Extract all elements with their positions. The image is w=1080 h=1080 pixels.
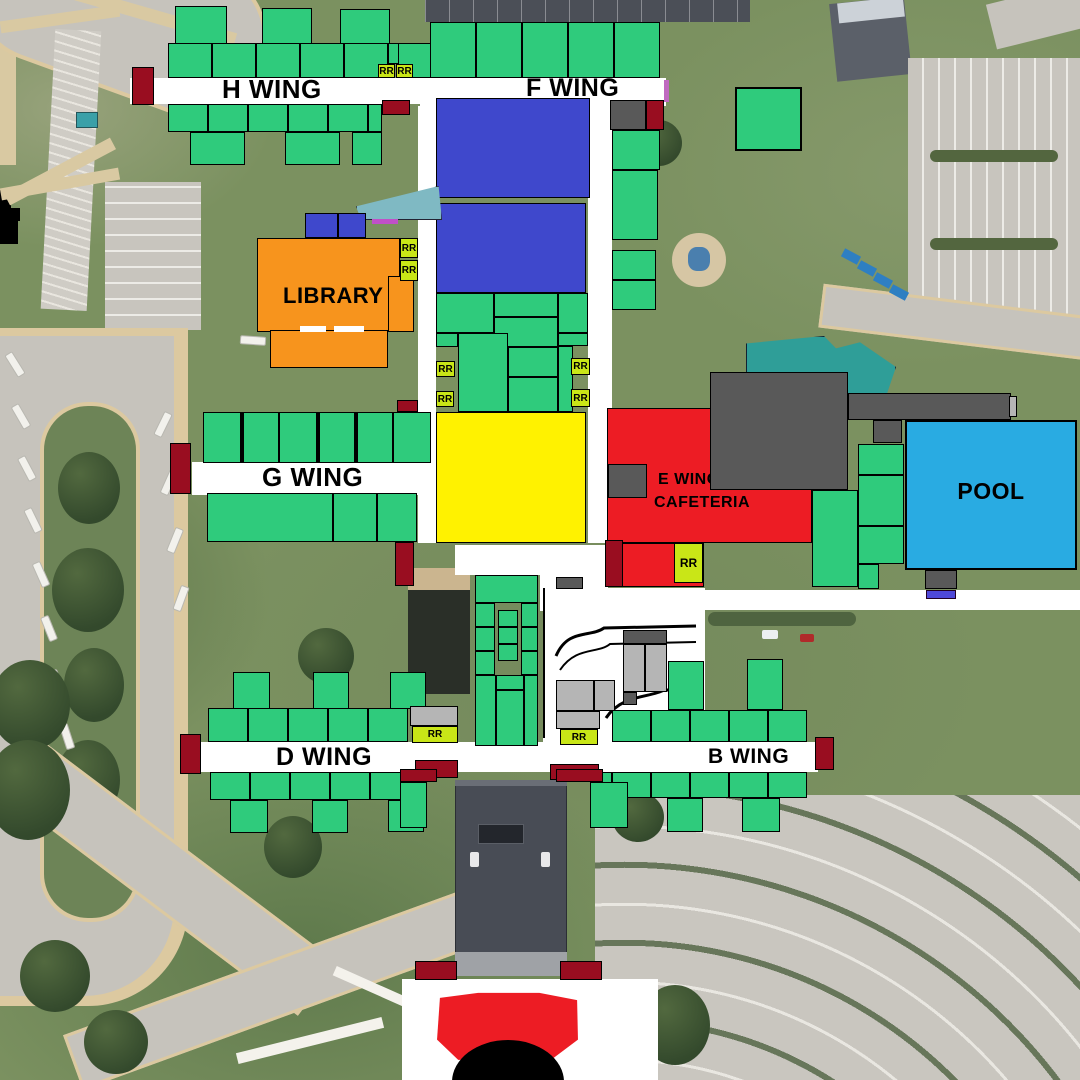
b-wing-room: [668, 661, 704, 710]
marker-blue-pool: [926, 590, 956, 599]
g-wing-room: [279, 412, 317, 463]
f-wing-room: [430, 22, 476, 78]
exit-block-g-northeast: [397, 400, 418, 412]
f-wing-room: [568, 22, 614, 78]
pe-room: [858, 475, 904, 526]
d-wing-room: [230, 800, 268, 833]
d-wing-room: [330, 772, 370, 800]
parking-ne-median-b: [930, 238, 1058, 250]
hedge-row: [708, 612, 856, 626]
library-block: [388, 276, 414, 332]
f-wing-room: [522, 22, 568, 78]
c-wing-room: [498, 644, 518, 661]
h-wing-room: [190, 132, 245, 165]
f-wing-room: [614, 22, 660, 78]
sidewalk-pool-south: [700, 590, 1080, 610]
exit-block-h-east: [382, 100, 410, 115]
b-wing-room: [690, 710, 729, 742]
core-room: [494, 293, 558, 317]
core-room: [558, 333, 588, 346]
admin-block: [623, 644, 645, 692]
parking-west-lot: [105, 182, 201, 330]
d-wing-room: [313, 672, 349, 709]
d-wing-room: [250, 772, 290, 800]
restroom-h-wing: RR: [378, 64, 395, 78]
gym-block-north: [436, 98, 590, 198]
service-block-pool: [925, 570, 957, 589]
restroom-h-wing: RR: [396, 64, 413, 78]
admin-block-dark: [623, 692, 637, 705]
c-wing-room: [496, 675, 524, 690]
service-block-cafeteria: [608, 464, 647, 498]
d-wing-room: [288, 708, 328, 742]
b-wing-room: [612, 710, 651, 742]
restroom-core: RR: [436, 361, 455, 377]
restroom-core: RR: [571, 389, 590, 407]
g-wing-room: [203, 412, 241, 463]
commons-block: [436, 412, 586, 543]
h-wing-room: [168, 43, 212, 78]
sculpture: [688, 247, 710, 271]
f-wing-room: [612, 130, 660, 170]
admin-block-dark: [623, 630, 667, 644]
g-wing-room: [241, 412, 279, 463]
library-notch: [334, 326, 364, 332]
d-wing-room: [390, 672, 426, 709]
d-wing-room: [208, 708, 248, 742]
entrance-apron: [455, 952, 567, 976]
library-notch: [300, 326, 326, 332]
service-block-d: [410, 706, 458, 726]
c-wing-room: [475, 675, 496, 746]
core-wall-tab: [0, 233, 18, 244]
b-wing-room: [651, 710, 690, 742]
b-wing-room: [768, 772, 807, 798]
entrance-room-west: [400, 782, 427, 828]
f-wing-room: [476, 22, 522, 78]
van-white: [762, 630, 778, 639]
core-room: [508, 347, 558, 377]
fieldhouse-arm: [873, 420, 902, 443]
exit-block-entrance-nw: [400, 769, 437, 782]
gym-block-south: [436, 203, 586, 293]
g-wing-room: [207, 493, 333, 542]
core-wall-tab: [0, 221, 18, 233]
h-wing-room: [300, 43, 344, 78]
g-wing-room: [333, 493, 377, 542]
d-wing-label: D WING: [276, 743, 372, 772]
h-wing-room: [328, 104, 368, 132]
b-wing-room: [729, 772, 768, 798]
restroom-core: RR: [436, 391, 454, 407]
exit-block-entrance-ne: [556, 769, 603, 782]
h-wing-room: [168, 104, 208, 132]
canoe: [857, 260, 877, 276]
h-wing-room: [212, 43, 256, 78]
pe-room: [812, 490, 858, 587]
entrance-building-ridge: [455, 780, 567, 786]
road-top-right-corner: [986, 0, 1080, 49]
c-wing-room: [498, 627, 518, 644]
fieldhouse-arm: [848, 393, 1011, 420]
tree: [64, 648, 124, 722]
b-wing-room: [690, 772, 729, 798]
core-room: [458, 333, 508, 412]
car-white: [470, 852, 479, 867]
d-wing-room: [290, 772, 330, 800]
restroom-library: RR: [400, 238, 418, 258]
g-wing-room: [377, 493, 417, 542]
tree: [52, 548, 124, 632]
entrance-room-east: [590, 782, 628, 828]
c-wing-room: [521, 603, 538, 627]
entrance-building-roof: [455, 780, 567, 960]
d-wing-room: [210, 772, 250, 800]
c-wing-room: [475, 651, 495, 675]
g-wing-label: G WING: [262, 462, 363, 493]
annex-room-northeast: [735, 87, 802, 151]
h-wing-room: [262, 8, 312, 44]
admin-block: [594, 680, 615, 711]
d-wing-room: [328, 708, 368, 742]
h-wing-room: [248, 104, 288, 132]
b-wing-room: [747, 659, 783, 710]
d-wing-room: [248, 708, 288, 742]
exit-block-cafeteria: [605, 540, 623, 587]
d-wing-room: [312, 800, 348, 833]
core-room: [436, 293, 494, 333]
roof-teal-triangle: [356, 186, 442, 220]
pe-room: [858, 444, 904, 475]
exit-block-g-southeast: [395, 542, 414, 586]
bus: [240, 335, 267, 346]
admin-block: [556, 680, 594, 711]
tree: [58, 452, 120, 524]
library-label: LIBRARY: [283, 283, 383, 309]
f-wing-room: [612, 170, 658, 240]
core-room: [508, 377, 558, 412]
b-wing-label: B WING: [708, 745, 789, 769]
exit-block-f: [646, 100, 664, 130]
library-annex-blue: [338, 213, 366, 238]
b-wing-room: [742, 798, 780, 832]
exit-block-d-west: [180, 734, 201, 774]
h-wing-room: [340, 9, 390, 45]
pe-room: [858, 526, 904, 564]
d-wing-room: [233, 672, 270, 709]
c-wing-room: [475, 603, 495, 627]
marker-purple: [664, 80, 669, 102]
marker-magenta: [372, 219, 398, 224]
e-wing-label-line2: CAFETERIA: [654, 494, 750, 512]
tree: [84, 1010, 148, 1074]
g-wing-room: [393, 412, 431, 463]
h-wing-room: [285, 132, 340, 165]
service-block-c: [556, 577, 583, 589]
exit-block-b-east: [815, 737, 834, 770]
restroom-library: RR: [400, 260, 418, 281]
h-wing-room: [368, 104, 382, 132]
exit-block-g-west: [170, 443, 191, 494]
c-wing-room: [496, 690, 524, 746]
h-wing-room: [208, 104, 248, 132]
canoe: [841, 248, 861, 264]
exit-block-h-west: [132, 67, 154, 105]
fieldhouse-block: [710, 372, 848, 490]
exit-block-auditorium-w: [415, 961, 457, 980]
b-wing-room: [768, 710, 807, 742]
b-wing-room: [729, 710, 768, 742]
h-wing-room: [288, 104, 328, 132]
h-wing-label: H WING: [222, 74, 322, 105]
admin-area-west-wall: [543, 588, 545, 738]
g-wing-room: [317, 412, 355, 463]
tree: [20, 940, 90, 1012]
b-wing-room: [651, 772, 690, 798]
exit-block-auditorium-e: [560, 961, 602, 980]
h-wing-room: [256, 43, 300, 78]
dumpster-teal: [76, 112, 98, 128]
f-wing-room: [612, 280, 656, 310]
parking-ne-median-a: [930, 150, 1058, 162]
canoe: [873, 272, 893, 288]
library-block: [270, 330, 388, 368]
f-wing-room: [612, 250, 656, 280]
b-wing-room: [667, 798, 703, 832]
c-wing-room: [498, 610, 518, 627]
car-white: [541, 852, 550, 867]
restroom-d-wing: RR: [412, 726, 458, 743]
roof-strip-top: [425, 0, 750, 22]
c-wing-room: [475, 575, 538, 603]
service-block-f: [610, 100, 646, 130]
d-wing-room: [368, 708, 408, 742]
c-wing-room: [524, 675, 538, 746]
parking-northeast: [908, 58, 1080, 330]
restroom-core: RR: [571, 358, 590, 375]
g-wing-room: [355, 412, 393, 463]
h-wing-room: [175, 6, 227, 44]
campus-map: RR RR H WING F WING LIBRARY RR RR: [0, 0, 1080, 1080]
c-wing-room: [521, 651, 538, 675]
core-room: [558, 293, 588, 333]
fieldhouse-tip: [1009, 396, 1017, 417]
restroom-b-wing: RR: [560, 729, 598, 745]
car-red: [800, 634, 814, 642]
pool-label: POOL: [905, 478, 1077, 505]
pe-room: [858, 564, 879, 589]
library-annex-blue: [305, 213, 338, 238]
admin-block: [645, 644, 667, 692]
core-wall-tab: [0, 208, 20, 221]
h-wing-room: [352, 132, 382, 165]
admin-block: [556, 711, 600, 729]
rooftop-unit: [478, 824, 524, 844]
core-room: [436, 333, 458, 347]
c-wing-room: [475, 627, 495, 651]
restroom-cafeteria: RR: [674, 543, 703, 583]
c-wing-room: [521, 627, 538, 651]
